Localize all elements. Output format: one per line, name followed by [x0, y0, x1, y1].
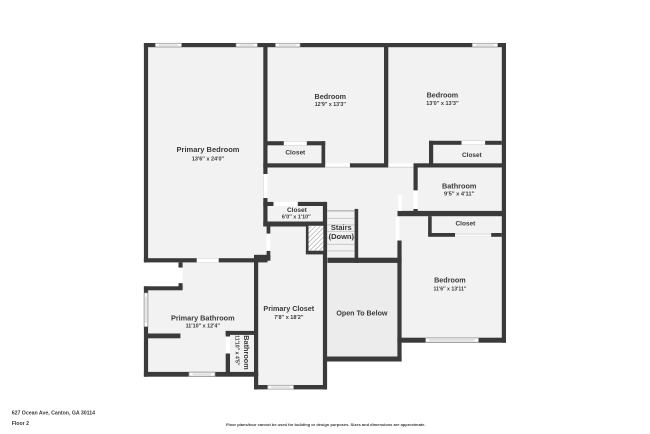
svg-text:Primary Bathroom: Primary Bathroom — [171, 313, 235, 322]
svg-text:Floor plans/tour cannot be use: Floor plans/tour cannot be used for buil… — [226, 422, 425, 427]
svg-text:11′10″ x 12′4″: 11′10″ x 12′4″ — [186, 323, 221, 329]
svg-text:Open To Below: Open To Below — [336, 309, 388, 317]
svg-text:11′10″ x 4′5″: 11′10″ x 4′5″ — [233, 335, 239, 366]
svg-text:13′0″ x 13′3″: 13′0″ x 13′3″ — [426, 101, 459, 107]
svg-text:12′9″ x 13′3″: 12′9″ x 13′3″ — [315, 102, 347, 108]
svg-text:Closet: Closet — [462, 152, 483, 159]
svg-text:11′6″ x 13′11″: 11′6″ x 13′11″ — [433, 286, 466, 292]
svg-text:Stairs: Stairs — [331, 223, 352, 232]
svg-text:Bathroom: Bathroom — [242, 335, 251, 370]
svg-text:Bedroom: Bedroom — [427, 91, 459, 100]
svg-text:13′6″ x 24′0″: 13′6″ x 24′0″ — [192, 157, 225, 163]
svg-text:Closet: Closet — [455, 220, 476, 227]
svg-text:627 Ocean Ave, Canton, GA 3011: 627 Ocean Ave, Canton, GA 30114 — [12, 411, 95, 417]
svg-text:9′5″ x 4′11″: 9′5″ x 4′11″ — [444, 191, 475, 197]
svg-text:6′0″ x 1′10″: 6′0″ x 1′10″ — [282, 215, 311, 221]
svg-text:Closet: Closet — [285, 150, 306, 157]
svg-text:Primary Bedroom: Primary Bedroom — [177, 145, 240, 154]
svg-text:Primary Closet: Primary Closet — [263, 304, 314, 313]
svg-text:Bathroom: Bathroom — [442, 181, 477, 190]
svg-text:(Down): (Down) — [329, 232, 355, 241]
svg-text:Floor 2: Floor 2 — [12, 421, 29, 427]
svg-text:Closet: Closet — [287, 207, 308, 214]
svg-text:7′8″ x 18′2″: 7′8″ x 18′2″ — [274, 315, 304, 321]
svg-text:Bedroom: Bedroom — [434, 276, 466, 285]
svg-text:Bedroom: Bedroom — [315, 92, 347, 101]
